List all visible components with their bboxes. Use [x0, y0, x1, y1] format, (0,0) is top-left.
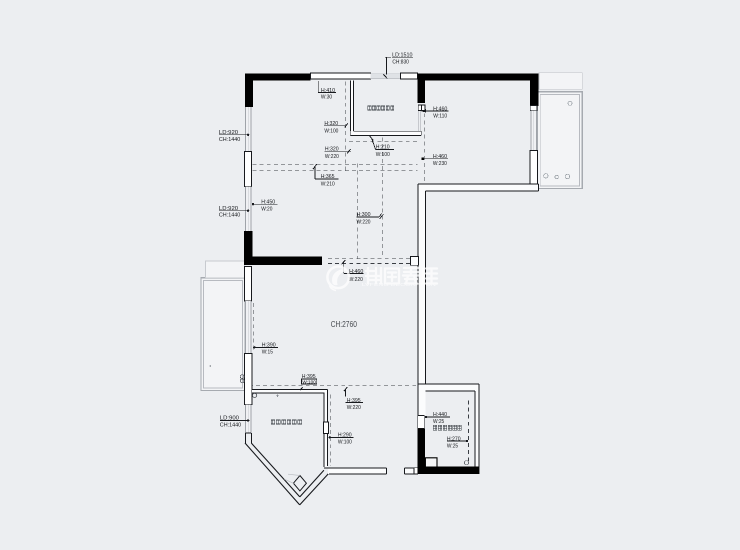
- svg-text:CH:1440: CH:1440: [220, 423, 241, 429]
- svg-text:W:100: W:100: [302, 379, 316, 385]
- svg-text:W:20: W:20: [261, 206, 272, 212]
- svg-text:W:100: W:100: [376, 152, 390, 158]
- svg-text:CH:1440: CH:1440: [219, 137, 240, 143]
- svg-text:W:220: W:220: [325, 154, 339, 160]
- svg-text:W:15: W:15: [262, 349, 273, 355]
- svg-text:CH:830: CH:830: [392, 60, 409, 66]
- svg-text:CH:1440: CH:1440: [219, 213, 240, 219]
- svg-text:W:110: W:110: [433, 113, 447, 119]
- svg-text:CH:2760: CH:2760: [331, 320, 358, 329]
- svg-text:W:30: W:30: [321, 94, 332, 100]
- svg-text:W:220: W:220: [349, 277, 363, 283]
- svg-text:W:25: W:25: [433, 419, 444, 425]
- svg-text:W:220: W:220: [357, 220, 371, 226]
- svg-text:W:100: W:100: [324, 128, 338, 134]
- svg-text:W:210: W:210: [321, 182, 335, 188]
- svg-text:W:230: W:230: [433, 161, 447, 167]
- svg-text:W:220: W:220: [347, 405, 361, 411]
- svg-text:LVFENG DECORATION: LVFENG DECORATION: [362, 282, 436, 287]
- svg-text:W:100: W:100: [338, 440, 352, 446]
- svg-text:W:25: W:25: [447, 443, 458, 449]
